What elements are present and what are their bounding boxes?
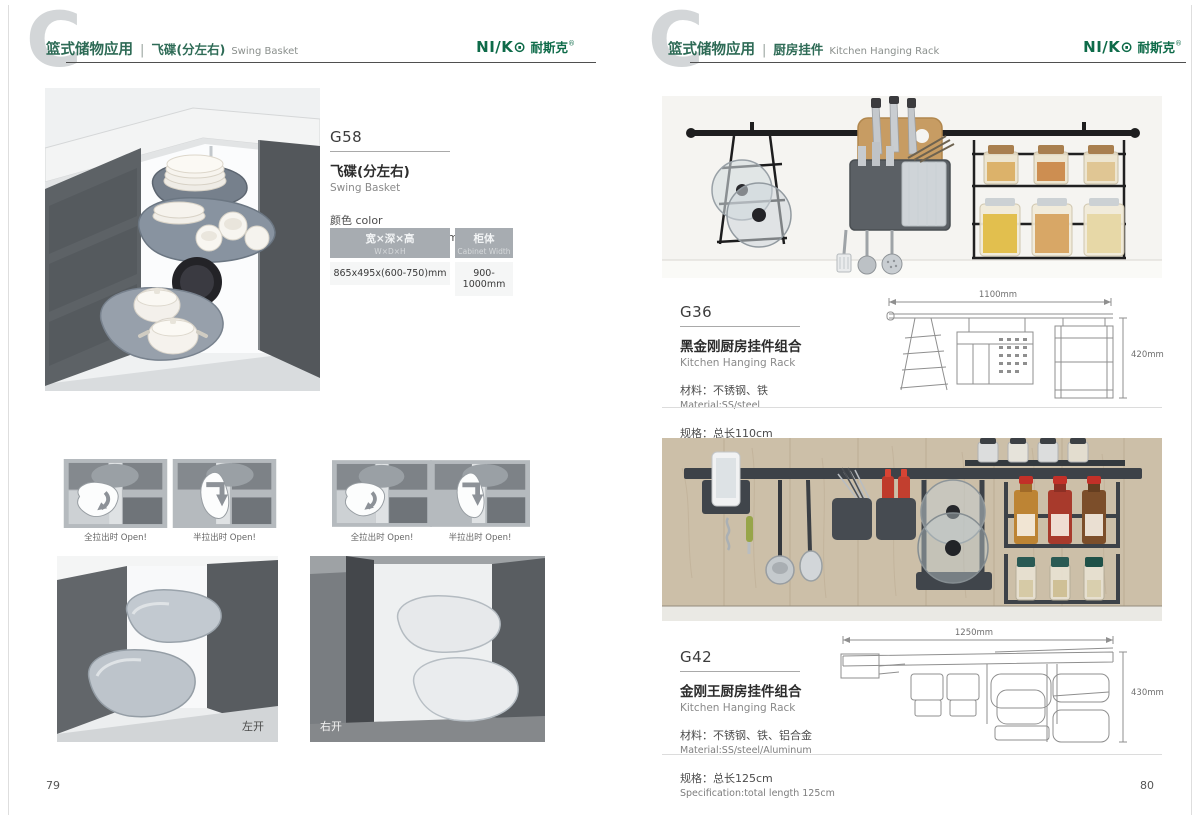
g36-technical-drawing: 1100mm 420mm <box>885 292 1155 407</box>
spec-header-en: W×D×H <box>330 247 450 256</box>
header-separator: | <box>140 43 144 58</box>
diagram-caption: 全拉出时 Open! <box>332 531 432 543</box>
swing-basket-photo <box>45 88 320 391</box>
photo-label-right-open: 右开 <box>320 718 342 734</box>
nisko-logo-wordmark: NI/K⊙ <box>1083 38 1133 56</box>
section-title-en: Swing Basket <box>231 46 298 57</box>
spec-en: Specification:total length 125cm <box>680 787 890 800</box>
g42-technical-drawing: 1250mm 430mm <box>835 630 1165 748</box>
product-name-cn: 飞碟(分左右) <box>330 160 555 180</box>
dimension-height-label: 430mm <box>1131 688 1164 698</box>
nisko-logo: NI/K⊙耐斯克® <box>445 37 575 56</box>
g42-hanging-rack-photo <box>662 438 1162 621</box>
left-open-photo: 左开 <box>57 556 278 742</box>
header-separator: | <box>762 43 766 58</box>
page-right-header: 篮式储物应用|厨房挂件Kitchen Hanging Rack <box>668 38 939 59</box>
category-title: 篮式储物应用 <box>668 42 755 58</box>
diagram-caption: 全拉出时 Open! <box>63 531 168 543</box>
catalog-spread: C 篮式储物应用|飞碟(分左右)Swing Basket NI/K⊙耐斯克® <box>0 0 1200 820</box>
spec-header-en: Cabinet Width <box>455 247 513 256</box>
spec-cn: 规格：总长125cm <box>680 770 890 787</box>
photo-label-left-open: 左开 <box>242 718 264 734</box>
product-name-en: Swing Basket <box>330 182 555 194</box>
nisko-logo-cn: 耐斯克 <box>530 40 568 55</box>
model-rule <box>680 671 800 672</box>
spec-col-cabinet: 柜体 Cabinet Width 900-1000mm <box>455 228 513 296</box>
nisko-logo-wordmark: NI/K⊙ <box>476 38 526 56</box>
category-title: 篮式储物应用 <box>46 42 133 58</box>
section-title-en: Kitchen Hanging Rack <box>829 46 939 57</box>
page-number-right: 80 <box>1140 779 1154 792</box>
spec-value-cabinet: 900-1000mm <box>455 262 513 296</box>
dimension-width-label: 1250mm <box>835 628 1113 638</box>
diagram-half-pull-1 <box>172 459 277 528</box>
page-edge-right <box>1191 5 1192 815</box>
page-left-header: 篮式储物应用|飞碟(分左右)Swing Basket <box>46 38 298 59</box>
registered-mark: ® <box>1175 40 1182 48</box>
model-number: G36 <box>680 303 890 321</box>
section-divider <box>662 407 1162 408</box>
material-en: Material:SS/steel <box>680 399 890 412</box>
spec-header-cn: 柜体 <box>455 231 513 246</box>
header-rule <box>66 62 596 63</box>
spec-header-cabinet: 柜体 Cabinet Width <box>455 228 513 258</box>
diagram-half-pull-2 <box>430 459 530 528</box>
header-rule <box>690 62 1186 63</box>
spec-table: 宽×深×高 W×D×H 865x495x(600-750)mm 柜体 Cabin… <box>330 228 513 296</box>
dimension-height-label: 420mm <box>1131 350 1164 360</box>
section-title-cn: 厨房挂件 <box>773 42 823 57</box>
page-edge-left <box>8 5 9 815</box>
right-open-photo: 右开 <box>310 556 545 742</box>
diagram-full-pull-1 <box>63 459 168 528</box>
material-cn: 材料：不锈钢、铁 <box>680 382 890 399</box>
diagram-caption: 半拉出时 Open! <box>172 531 277 543</box>
spec-header-cn: 宽×深×高 <box>330 231 450 246</box>
registered-mark: ® <box>568 40 575 48</box>
diagram-caption: 半拉出时 Open! <box>430 531 530 543</box>
diagram-full-pull-2 <box>332 459 432 528</box>
product-name-en: Kitchen Hanging Rack <box>680 357 890 369</box>
color-label: 颜色 color <box>330 212 555 229</box>
dimension-width-label: 1100mm <box>885 290 1111 300</box>
model-rule <box>680 326 800 327</box>
spec-col-dimensions: 宽×深×高 W×D×H 865x495x(600-750)mm <box>330 228 450 296</box>
nisko-logo-cn: 耐斯克 <box>1137 40 1175 55</box>
spec-value-dimensions: 865x495x(600-750)mm <box>330 262 450 285</box>
model-number: G58 <box>330 128 555 146</box>
model-rule <box>330 151 450 152</box>
product-name-cn: 黑金刚厨房挂件组合 <box>680 335 890 355</box>
section-title-cn: 飞碟(分左右) <box>151 42 225 57</box>
product-info-g36: G36 黑金刚厨房挂件组合 Kitchen Hanging Rack 材料：不锈… <box>680 303 890 456</box>
spec-header-dimensions: 宽×深×高 W×D×H <box>330 228 450 258</box>
nisko-logo: NI/K⊙耐斯克® <box>1052 37 1182 56</box>
section-divider <box>662 754 1162 755</box>
g36-hanging-rack-photo <box>662 96 1162 278</box>
page-number-left: 79 <box>46 779 60 792</box>
